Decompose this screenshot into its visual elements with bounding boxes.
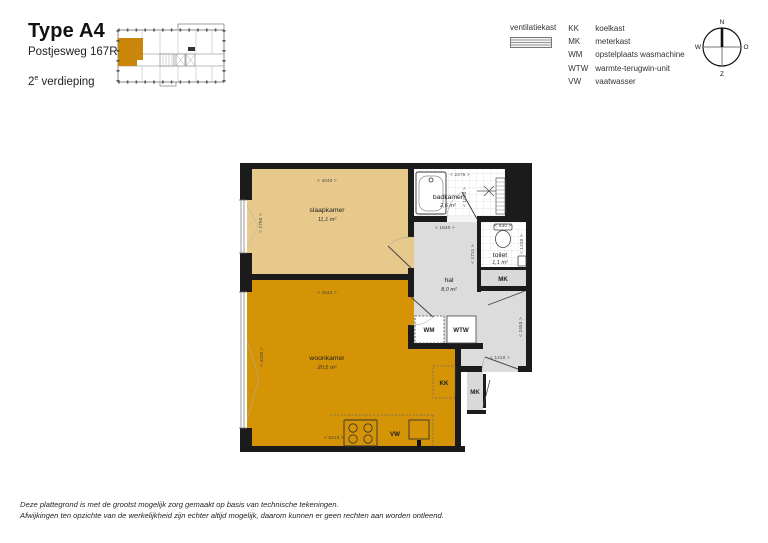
dim-woonkamer-depth: < 4435 > <box>259 347 264 367</box>
badkamer-label: badkamer <box>433 194 464 201</box>
wtw-label: WTW <box>453 327 469 334</box>
dim-hal-width: < 1840 > <box>435 225 455 230</box>
dim-badkamer-inner: < 1060 > <box>462 187 467 207</box>
ventilatiekast-label: ventilatiekast <box>510 22 556 34</box>
wall-slaapkamer-woonkamer <box>246 274 408 280</box>
wall-badkamer-a <box>414 216 447 222</box>
window-slaapkamer <box>239 200 247 253</box>
dim-woonkamer-width: < 4040 > <box>317 290 337 295</box>
dim-toilet-width: < 930 > <box>495 223 512 228</box>
wall-niche-bottom <box>467 410 486 414</box>
hal-area: 8,0 m² <box>441 287 458 293</box>
wall-entry-b <box>518 366 532 372</box>
legend-row: WTWwarmte-terugwin-unit <box>568 62 684 75</box>
compass-south-label: Z <box>720 71 724 78</box>
wall-pier-2 <box>246 253 252 292</box>
ventilatiekast-duct <box>496 178 505 214</box>
wall-niche-right <box>483 374 486 408</box>
dim-hal-depth: < 2453 > <box>518 317 523 337</box>
hal-label: hal <box>444 277 454 284</box>
legend-abbreviations: KKkoelkast MKmeterkast WMopstelplaats wa… <box>568 22 684 88</box>
vw-label: VW <box>390 431 400 438</box>
legend-row: KKkoelkast <box>568 22 684 35</box>
legend-desc: warmte-terugwin-unit <box>595 64 670 73</box>
wall-below-wtw <box>408 343 483 349</box>
toilet-label: toilet <box>493 252 507 259</box>
dim-kitchen-width: < 5215 > <box>324 435 344 440</box>
mk-hal-label: MK <box>498 276 508 283</box>
legend-abbr: MK <box>568 35 595 48</box>
wall-toilet-left <box>477 216 481 292</box>
wall-slaapkamer-hal-a <box>408 169 414 237</box>
kk-label: KK <box>440 380 449 387</box>
legend-abbr: WTW <box>568 62 595 75</box>
toilet-area: 1,1 m² <box>492 260 509 266</box>
wall-kitchen-right <box>455 349 461 446</box>
woonkamer-area: 20,5 m² <box>317 365 338 371</box>
toilet-handbasin <box>518 256 526 266</box>
legend-row: WMopstelplaats wasmachine <box>568 48 684 61</box>
wall-bottom <box>240 446 465 452</box>
wm-label: WM <box>424 327 435 334</box>
wall-woonkamer-hal-a <box>408 280 414 297</box>
compass-north-label: N <box>720 19 725 26</box>
header: Type A4 Postjesweg 167R 2e verdieping <box>28 20 118 88</box>
wall-pier-1 <box>246 163 252 200</box>
disclaimer-line-2: Afwijkingen ten opzichte van de werkelij… <box>20 510 444 521</box>
dim-badkamer-width: < 2475 > <box>450 172 470 177</box>
kitchen-tap-icon <box>417 440 421 447</box>
compass-icon: N O Z W <box>694 16 752 82</box>
wall-mk-bottom <box>477 286 528 291</box>
floor-ordinal: e <box>34 75 38 82</box>
compass-east-label: O <box>743 44 748 51</box>
legend-desc: meterkast <box>595 37 630 46</box>
woonkamer-label: woonkamer <box>308 355 345 362</box>
badkamer-area: 2,6 m² <box>439 203 457 209</box>
legend-row: MKmeterkast <box>568 35 684 48</box>
woonkamer-kitchen-extension <box>408 349 461 446</box>
slaapkamer-area: 11,1 m² <box>318 217 338 223</box>
room-woonkamer <box>246 280 408 446</box>
legend: ventilatiekast KKkoelkast MKmeterkast WM… <box>510 22 685 88</box>
building-overview-map <box>112 16 230 94</box>
floorplan-page: { "header": { "title": "Type A4", "addre… <box>0 0 768 543</box>
ventilatiekast-hatch-icon <box>510 37 552 48</box>
wall-right <box>526 220 532 372</box>
legend-abbr: VW <box>568 75 595 88</box>
wall-toilet-top <box>477 216 532 222</box>
dim-toilet-depth: < 1230 > <box>519 234 524 254</box>
wall-topright-block <box>505 163 532 220</box>
dim-entrance-width: < 1210 > <box>490 355 510 360</box>
legend-row: VWvaatwasser <box>568 75 684 88</box>
floor-label: 2e verdieping <box>28 75 118 88</box>
toilet-bowl-fixture <box>496 231 511 248</box>
dim-slaapkamer-width: < 4040 > <box>317 178 337 183</box>
wall-slaapkamer-hal-b <box>408 268 414 280</box>
wall-toilet-mk <box>481 267 526 270</box>
mk-gallery-label: MK <box>470 389 480 396</box>
dim-slaapkamer-depth: < 2760 > <box>258 213 263 233</box>
legend-desc: koelkast <box>595 24 624 33</box>
map-shaft-block <box>188 47 195 51</box>
window-woonkamer <box>239 292 247 428</box>
legend-abbr: KK <box>568 22 595 35</box>
badkamer-doorway-floor <box>447 216 477 222</box>
dim-toilet-mk-depth: < 1711 > <box>470 244 475 264</box>
legend-desc: opstelplaats wasmachine <box>595 50 684 59</box>
legend-ventilatiekast: ventilatiekast <box>510 22 556 88</box>
slaapkamer-label: slaapkamer <box>309 207 345 214</box>
wall-top <box>240 163 532 169</box>
woonkamer-doorway-floor <box>408 297 414 325</box>
disclaimer: Deze plattegrond is met de grootst mogel… <box>20 499 444 522</box>
address: Postjesweg 167R <box>28 46 118 58</box>
legend-desc: vaatwasser <box>595 77 635 86</box>
disclaimer-line-1: Deze plattegrond is met de grootst mogel… <box>20 499 444 510</box>
compass-west-label: W <box>695 44 702 51</box>
legend-abbr: WM <box>568 48 595 61</box>
slaapkamer-doorway-floor <box>408 237 414 268</box>
floor-word: verdieping <box>42 76 95 88</box>
floor-plan: slaapkamer 11,1 m² woonkamer 20,5 m² bad… <box>238 159 538 455</box>
page-title: Type A4 <box>28 20 118 43</box>
map-roof-section <box>178 24 224 30</box>
